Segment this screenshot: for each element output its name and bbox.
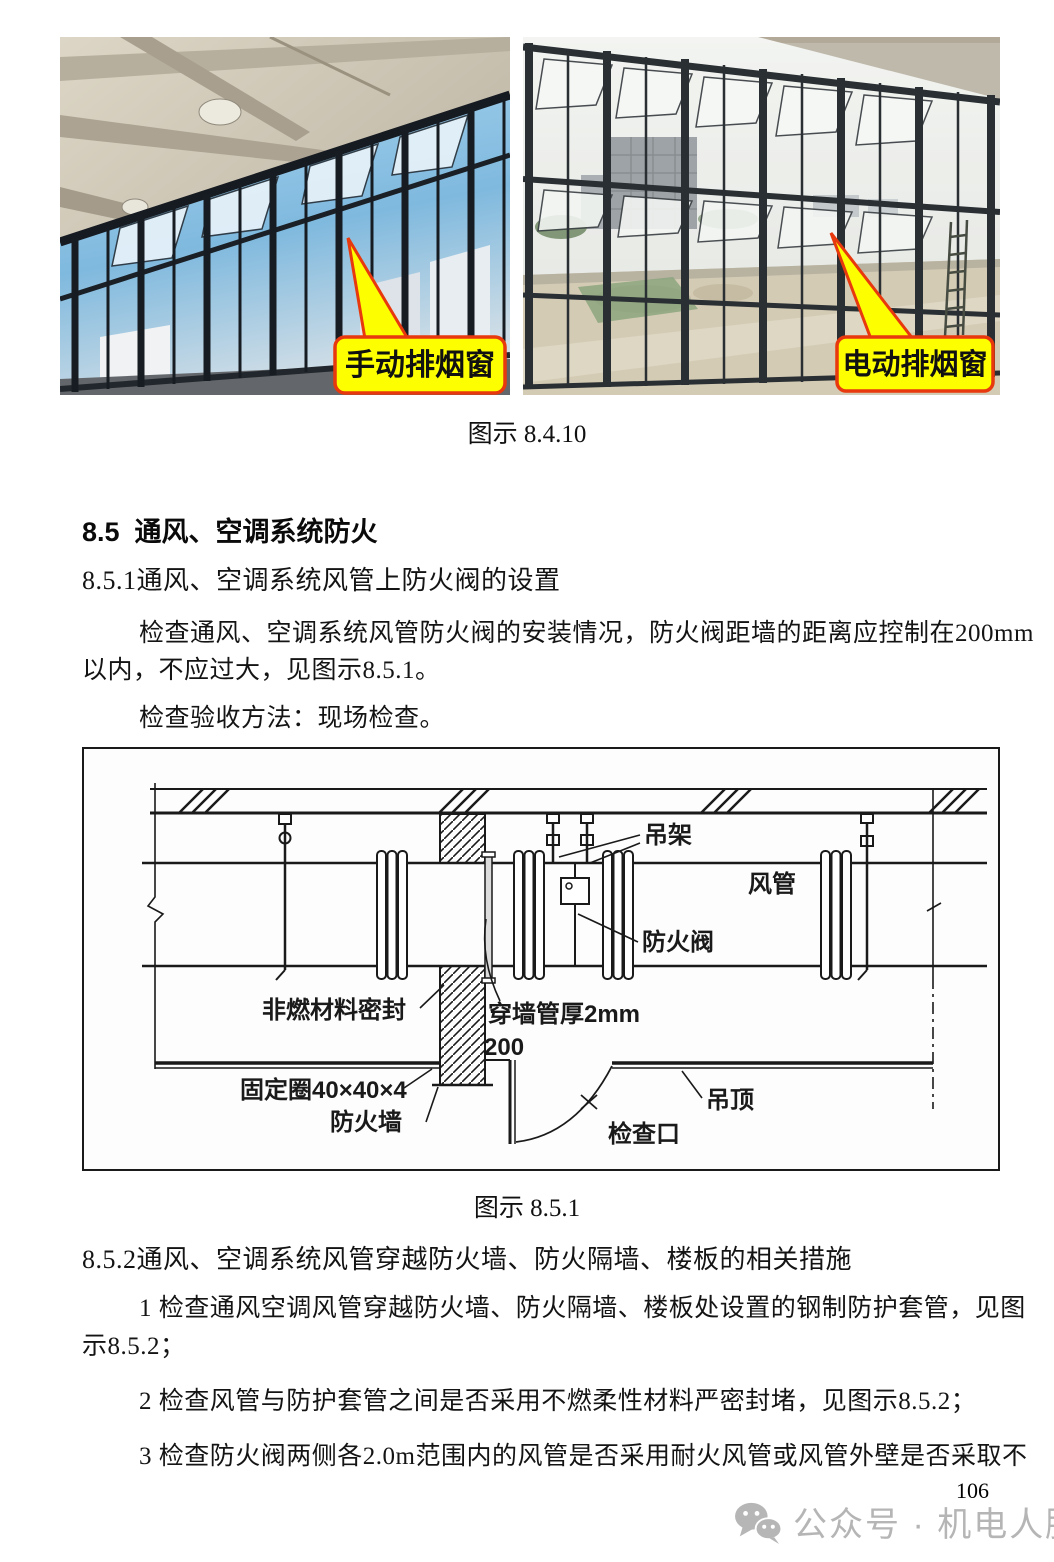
watermark-text: 公众号 · 机电人脉 — [793, 1497, 1054, 1546]
label-fixing-ring: 固定圈40×40×4 — [240, 1076, 407, 1104]
photo-right-scene: 电动排烟窗 — [523, 37, 1000, 395]
photo-electric-smoke-vent-window: 电动排烟窗 — [523, 37, 1000, 395]
para-852-item3: 3 检查防火阀两侧各2.0m范围内的风管是否采用耐火风管或风管外壁是否采取不 — [139, 1436, 1027, 1472]
para-851-line1: 检查通风、空调系统风管防火阀的安装情况，防火阀距墙的距离应控制在200mm — [139, 613, 1034, 649]
para-851-line2: 以内，不应过大，见图示8.5.1。 — [82, 650, 441, 686]
label-fire-wall: 防火墙 — [330, 1108, 402, 1136]
label-hanger: 吊架 — [644, 822, 692, 849]
photo-manual-smoke-vent-window: 手动排烟窗 — [60, 37, 510, 395]
wall-sleeve — [482, 852, 495, 983]
heading-852: 8.5.2通风、空调系统风管穿越防火墙、防火隔墙、楼板的相关措施 — [82, 1239, 852, 1276]
fire-damper-diagram: 吊架 风管 防火阀 非燃材料密封 穿墙管厚2mm 200 固定圈40×40×4 … — [84, 749, 998, 1169]
para-852-item1-line1: 1 检查通风空调风管穿越防火墙、防火隔墙、楼板处设置的钢制防护套管，见图 — [139, 1288, 1026, 1324]
fire-damper-actuator — [561, 863, 589, 966]
figure-851-diagram: 吊架 风管 防火阀 非燃材料密封 穿墙管厚2mm 200 固定圈40×40×4 … — [82, 747, 1000, 1171]
floor-slab — [150, 789, 987, 813]
figure-caption-8410: 图示 8.4.10 — [0, 414, 1054, 450]
section-heading-85: 8.5 通风、空调系统防火 — [82, 510, 378, 549]
label-dim-200: 200 — [484, 1034, 524, 1061]
ceiling-lamp — [199, 99, 241, 125]
label-sleeve: 穿墙管厚2mm — [488, 1000, 640, 1028]
heading-851: 8.5.1通风、空调系统风管上防火阀的设置 — [82, 560, 561, 597]
label-ceiling: 吊顶 — [706, 1087, 754, 1114]
callout-label-manual: 手动排烟窗 — [345, 348, 495, 382]
photo-left-scene: 手动排烟窗 — [60, 37, 510, 395]
para-852-item2: 2 检查风管与防护套管之间是否采用不燃柔性材料严密封堵，见图示8.5.2； — [139, 1381, 976, 1417]
figure-caption-851: 图示 8.5.1 — [0, 1188, 1054, 1224]
para-851-method: 检查验收方法：现场检查。 — [139, 698, 445, 734]
wechat-icon — [733, 1500, 783, 1544]
inspection-door-swing — [516, 1066, 612, 1142]
label-fire-damper: 防火阀 — [642, 928, 714, 956]
document-page: 手动排烟窗 — [0, 0, 1054, 1562]
footer-watermark: 公众号 · 机电人脉 — [733, 1497, 1054, 1546]
callout-label-electric: 电动排烟窗 — [842, 347, 987, 381]
page-number: 106 — [956, 1478, 989, 1504]
label-seal: 非燃材料密封 — [262, 996, 406, 1024]
label-duct: 风管 — [748, 870, 796, 898]
para-852-item1-line2: 示8.5.2； — [82, 1326, 186, 1362]
label-inspection-port: 检查口 — [608, 1120, 680, 1148]
